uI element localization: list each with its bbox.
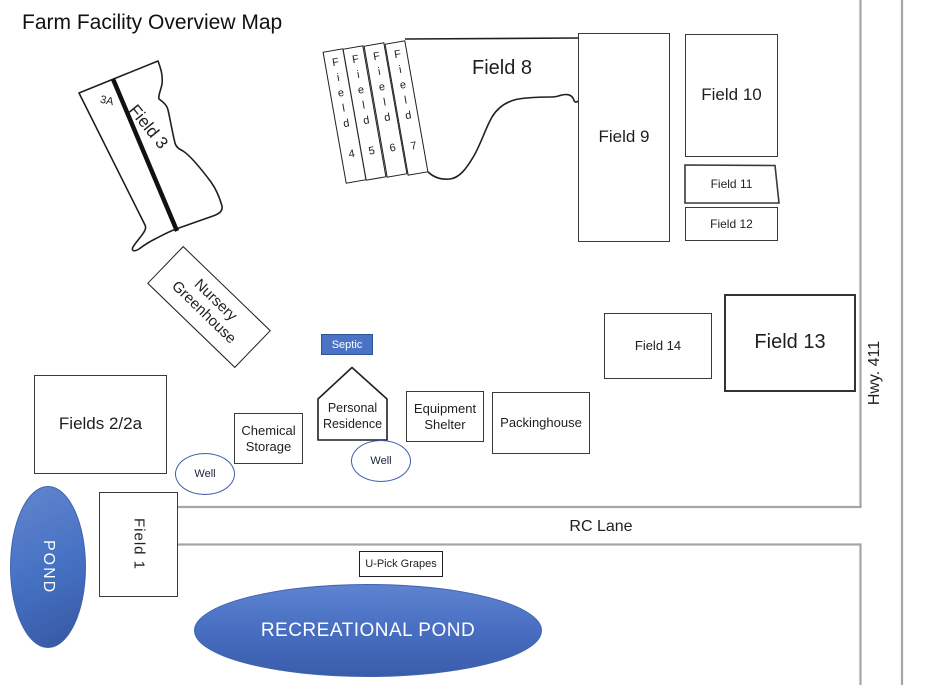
map-title: Farm Facility Overview Map [22, 11, 282, 35]
field-12-box: Field 12 [685, 207, 778, 241]
well-west-ellipse: Well [175, 453, 235, 495]
field-14-box: Field 14 [604, 313, 712, 379]
fields-2-2a-box: Fields 2/2a [34, 375, 167, 474]
field-11-label: Field 11 [685, 177, 778, 191]
field-8-top-boundary [405, 38, 578, 39]
pond-label: POND [39, 540, 57, 594]
equipment-shelter-box: Equipment Shelter [406, 391, 484, 442]
rc-lane-label: RC Lane [555, 518, 647, 536]
pond-ellipse: POND [10, 486, 86, 648]
field-3-shape [79, 61, 222, 251]
chemical-storage-box: Chemical Storage [234, 413, 303, 464]
field-8-curved-boundary [427, 95, 578, 180]
field-9-box: Field 9 [578, 33, 670, 242]
field-1-label: Field 1 [130, 518, 148, 570]
upick-grapes-box: U-Pick Grapes [359, 551, 443, 577]
farm-facility-map: Farm Facility Overview Map 3A Field 3 Fi… [0, 0, 934, 700]
recreational-pond-label: RECREATIONAL POND [261, 620, 475, 642]
field-8-label: Field 8 [442, 57, 562, 80]
well-east-ellipse: Well [351, 440, 411, 482]
personal-residence-label: Personal Residence [316, 401, 389, 432]
packinghouse-box: Packinghouse [492, 392, 590, 454]
recreational-pond-ellipse: RECREATIONAL POND [194, 584, 542, 677]
field-13-box: Field 13 [724, 294, 856, 392]
field-1-box: Field 1 [99, 492, 178, 597]
septic-box: Septic [321, 334, 373, 355]
field-10-box: Field 10 [685, 34, 778, 157]
hwy-411-label: Hwy. 411 [866, 323, 888, 423]
